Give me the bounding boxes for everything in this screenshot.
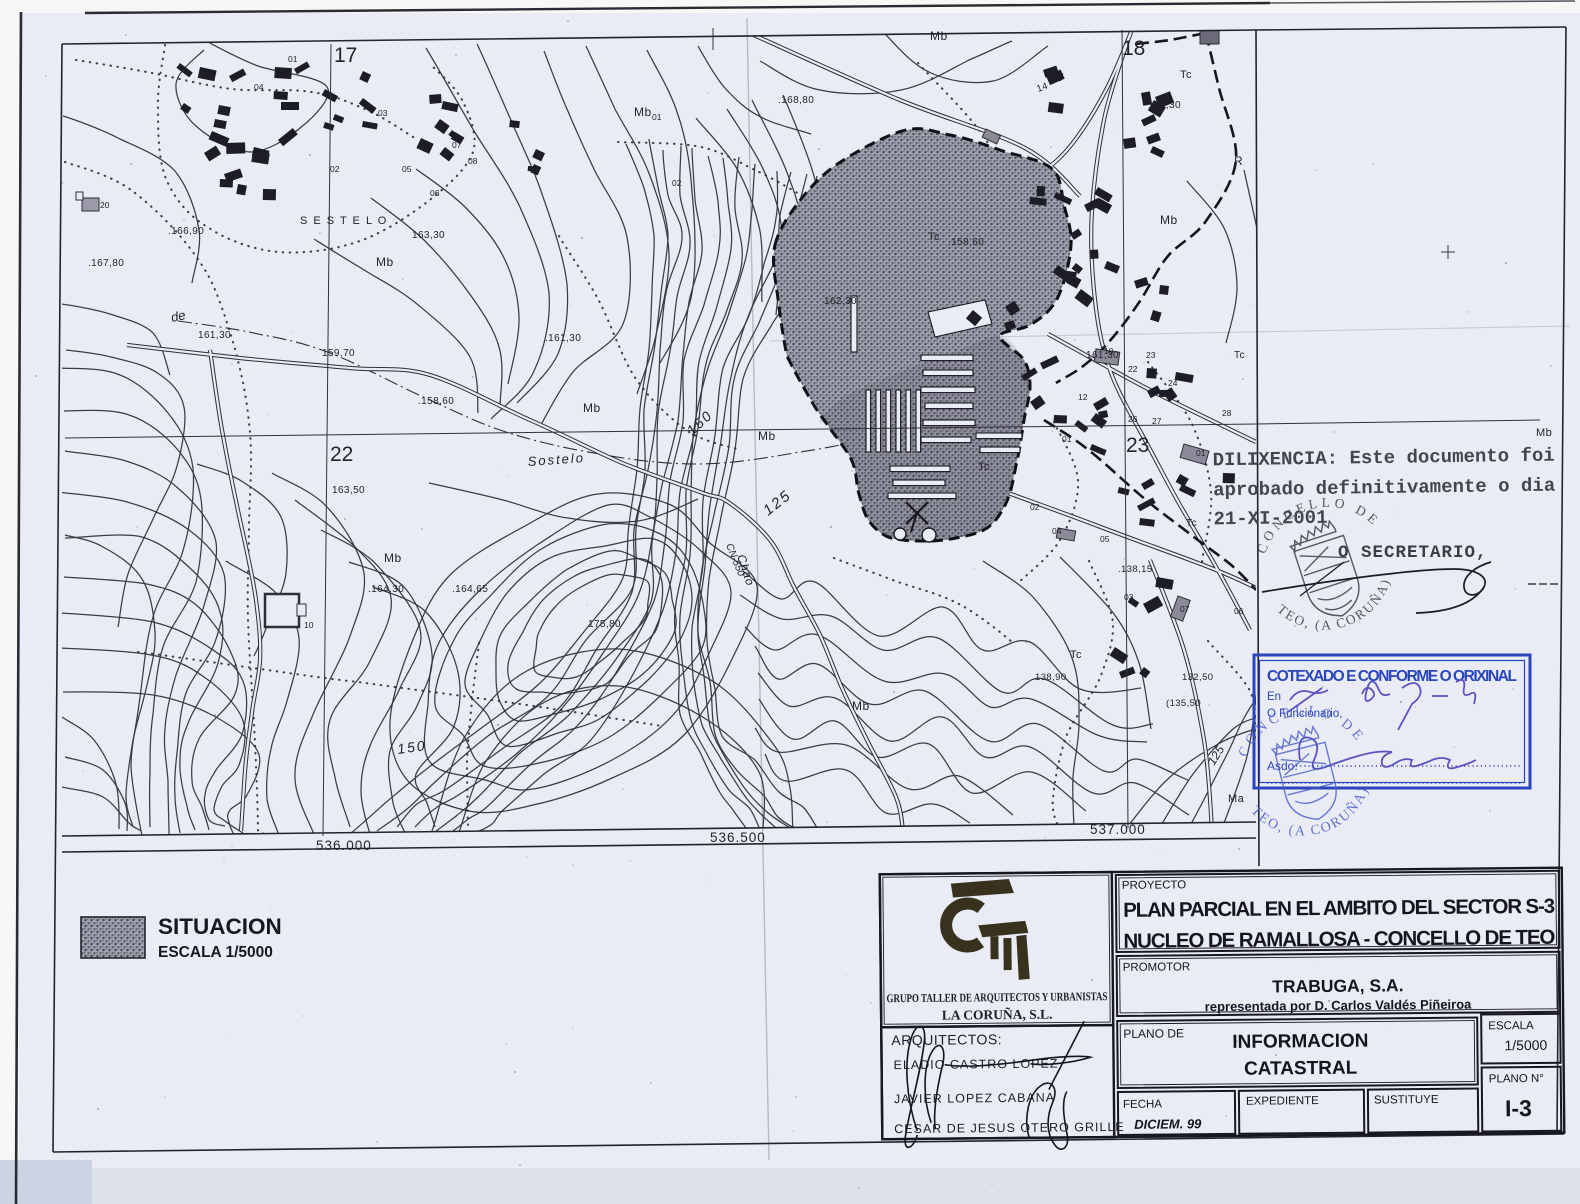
svg-text:PLANO N°: PLANO N° — [1489, 1073, 1544, 1086]
svg-text:PLAN PARCIAL EN EL AMBITO DEL: PLAN PARCIAL EN EL AMBITO DEL SECTOR S-3 — [1123, 895, 1555, 922]
svg-text:18: 18 — [1122, 37, 1145, 60]
svg-text:01: 01 — [652, 112, 662, 122]
svg-text:28: 28 — [1222, 408, 1232, 418]
svg-text:.167,80: .167,80 — [88, 258, 124, 269]
svg-text:.161,30: .161,30 — [545, 333, 581, 344]
svg-text:163,50: 163,50 — [332, 485, 365, 496]
svg-text:Mb: Mb — [583, 401, 601, 415]
svg-text:COTEXADO E CONFORME O ORIXINAL: COTEXADO E CONFORME O ORIXINAL — [1267, 668, 1517, 685]
svg-text:LA CORUÑA, S.L.: LA CORUÑA, S.L. — [942, 1007, 1053, 1023]
svg-text:157,30: 157,30 — [1148, 100, 1181, 111]
svg-text:10: 10 — [1104, 346, 1114, 356]
svg-text:162,30: 162,30 — [824, 296, 857, 307]
svg-text:Mb: Mb — [634, 105, 652, 119]
svg-text:(135,50: (135,50 — [1166, 698, 1201, 709]
svg-text:.158,60: .158,60 — [948, 237, 984, 248]
svg-text:Mb: Mb — [1160, 213, 1178, 227]
svg-text:SUSTITUYE: SUSTITUYE — [1374, 1094, 1439, 1107]
svg-text:06: 06 — [430, 188, 440, 198]
svg-text:07: 07 — [1180, 604, 1190, 614]
svg-text:10: 10 — [304, 620, 314, 630]
svg-text:02: 02 — [672, 178, 682, 188]
svg-text:.164,30: .164,30 — [368, 584, 404, 595]
svg-text:Mb: Mb — [376, 255, 394, 269]
svg-text:Tc: Tc — [1234, 350, 1245, 361]
svg-text:01: 01 — [1196, 448, 1206, 458]
svg-text:SITUACION: SITUACION — [158, 914, 282, 939]
svg-text:06: 06 — [1234, 606, 1244, 616]
svg-text:CESAR DE JESUS OTERO GRILLE: CESAR DE JESUS OTERO GRILLE — [894, 1120, 1125, 1136]
svg-text:Mb: Mb — [384, 551, 402, 565]
svg-text:01: 01 — [288, 54, 298, 64]
svg-text:Mb: Mb — [1536, 427, 1552, 439]
svg-text:536.500: 536.500 — [710, 830, 766, 845]
svg-text:PROMOTOR: PROMOTOR — [1123, 961, 1191, 974]
svg-text:GRUPO TALLER DE ARQUITECTOS Y: GRUPO TALLER DE ARQUITECTOS Y URBANISTAS — [886, 989, 1107, 1005]
svg-text:24: 24 — [1168, 378, 1178, 388]
svg-text:175,80: 175,80 — [588, 619, 621, 630]
svg-text:TRABUGA, S.A.: TRABUGA, S.A. — [1272, 975, 1403, 996]
svg-text:.166,90: .166,90 — [168, 226, 204, 237]
svg-text:22: 22 — [330, 443, 353, 466]
svg-text:03: 03 — [1124, 592, 1134, 602]
svg-text:05: 05 — [1100, 534, 1110, 544]
svg-text:05: 05 — [402, 164, 412, 174]
svg-text:Mb: Mb — [930, 29, 948, 43]
svg-text:de: de — [170, 307, 187, 325]
svg-text:04: 04 — [254, 82, 264, 92]
svg-text:S E S T E L O: S E S T E L O — [300, 215, 388, 227]
svg-text:I-3: I-3 — [1505, 1095, 1532, 1121]
svg-text:.158,60: .158,60 — [418, 396, 454, 407]
svg-text:02: 02 — [1030, 502, 1040, 512]
svg-text:NUCLEO DE RAMALLOSA - CONCELLO: NUCLEO DE RAMALLOSA - CONCELLO DE TEO — [1123, 926, 1555, 953]
svg-text:ESCALA: ESCALA — [1488, 1020, 1534, 1032]
svg-text:12: 12 — [1078, 392, 1088, 402]
svg-text:1/5000: 1/5000 — [1504, 1037, 1547, 1053]
svg-text:Tc: Tc — [1186, 518, 1197, 529]
svg-text:Tc: Tc — [1070, 649, 1082, 661]
svg-text:17: 17 — [334, 44, 357, 67]
svg-text:DICIEM. 99: DICIEM. 99 — [1134, 1116, 1202, 1132]
svg-text:161,30: 161,30 — [198, 330, 231, 341]
svg-text:26: 26 — [1128, 414, 1138, 424]
svg-text:22: 22 — [1128, 364, 1138, 374]
svg-text:07: 07 — [452, 140, 462, 150]
svg-text:159,70: 159,70 — [322, 348, 355, 359]
svg-text:Mb: Mb — [758, 429, 776, 443]
svg-text:01: 01 — [1062, 434, 1072, 444]
svg-text:FECHA: FECHA — [1123, 1099, 1162, 1111]
svg-text:R: R — [1234, 154, 1243, 168]
svg-text:ESCALA 1/5000: ESCALA 1/5000 — [158, 944, 273, 961]
svg-text:representada por D. Carlos Val: representada por D. Carlos Valdés Piñeir… — [1205, 997, 1473, 1015]
svg-text:.168,80: .168,80 — [778, 95, 814, 106]
svg-text:132,50: 132,50 — [1182, 672, 1213, 683]
svg-text:Tc: Tc — [978, 461, 990, 473]
svg-text:163,30: 163,30 — [412, 230, 445, 241]
svg-text:536.000: 536.000 — [316, 838, 372, 853]
svg-text:PROYECTO: PROYECTO — [1122, 879, 1186, 892]
svg-text:Tc: Tc — [928, 231, 940, 243]
svg-text:161,30: 161,30 — [1086, 350, 1119, 361]
svg-text:23: 23 — [1146, 350, 1156, 360]
svg-text:Tc: Tc — [1180, 69, 1192, 81]
svg-text:PLANO DE: PLANO DE — [1123, 1026, 1184, 1041]
svg-text:Mb: Mb — [852, 699, 870, 713]
svg-text:23: 23 — [1126, 434, 1149, 457]
svg-text:20: 20 — [100, 200, 110, 210]
svg-text:EXPEDIENTE: EXPEDIENTE — [1246, 1095, 1319, 1108]
svg-text:ARQUITECTOS:: ARQUITECTOS: — [891, 1031, 1002, 1048]
svg-text:03: 03 — [378, 108, 388, 118]
svg-text:08: 08 — [468, 156, 478, 166]
svg-text:CATASTRAL: CATASTRAL — [1244, 1058, 1358, 1080]
svg-text:O SECRETARIO,: O SECRETARIO, — [1338, 543, 1488, 563]
svg-text:537.000: 537.000 — [1090, 822, 1146, 837]
svg-text:.164,65: .164,65 — [452, 584, 488, 595]
svg-text:INFORMACION: INFORMACION — [1232, 1031, 1368, 1053]
svg-text:.138,90: .138,90 — [1032, 672, 1067, 683]
svg-text:27: 27 — [1152, 416, 1162, 426]
svg-text:En: En — [1267, 691, 1281, 703]
svg-text:02: 02 — [330, 164, 340, 174]
svg-text:04: 04 — [1052, 526, 1062, 536]
svg-text:.138,15: .138,15 — [1118, 564, 1153, 575]
svg-text:Ma: Ma — [1228, 793, 1245, 805]
